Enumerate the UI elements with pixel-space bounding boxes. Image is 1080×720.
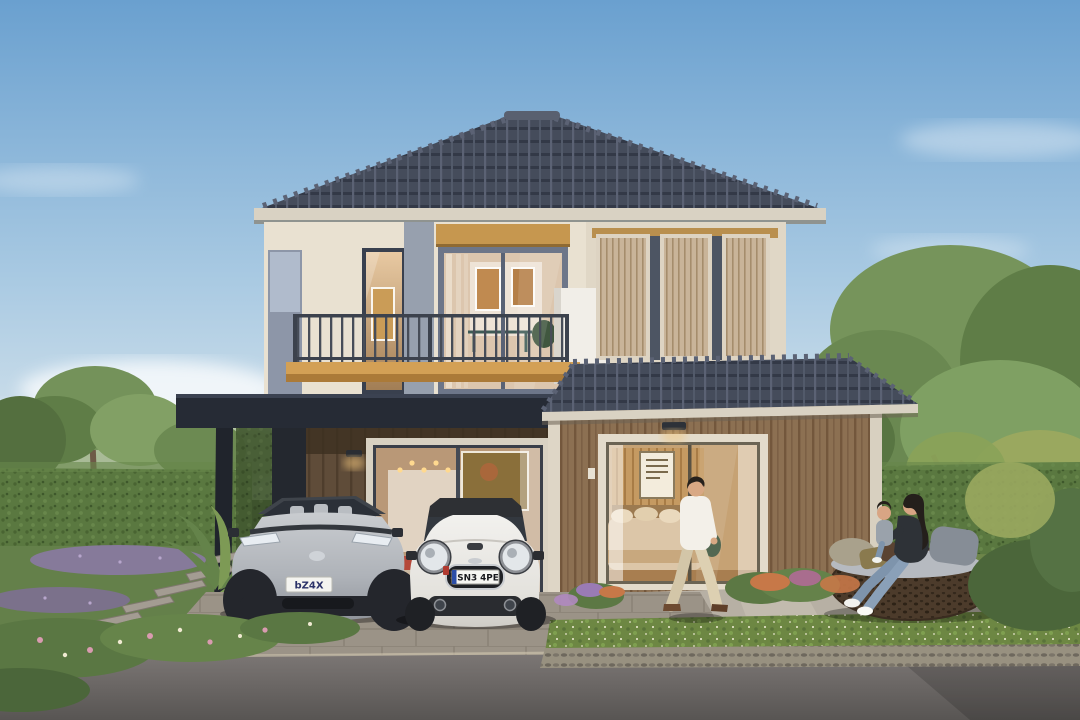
louvre-screens xyxy=(592,228,778,360)
suv-license-plate: bZ4X xyxy=(286,577,332,592)
bedroom-sconce xyxy=(661,422,687,443)
lower-roof xyxy=(542,356,918,425)
scene-canvas: bZ4X SN3 4PE xyxy=(0,0,1080,720)
right-wing xyxy=(560,402,882,600)
house-exterior-render: bZ4X SN3 4PE xyxy=(0,0,1080,720)
doorbell xyxy=(588,468,595,479)
carport-sconce xyxy=(343,450,365,470)
suv-license-plate-text: bZ4X xyxy=(294,581,323,592)
mini-license-plate: SN3 4PE xyxy=(452,570,499,584)
balcony xyxy=(286,314,580,382)
mini-license-plate-text: SN3 4PE xyxy=(457,574,498,584)
